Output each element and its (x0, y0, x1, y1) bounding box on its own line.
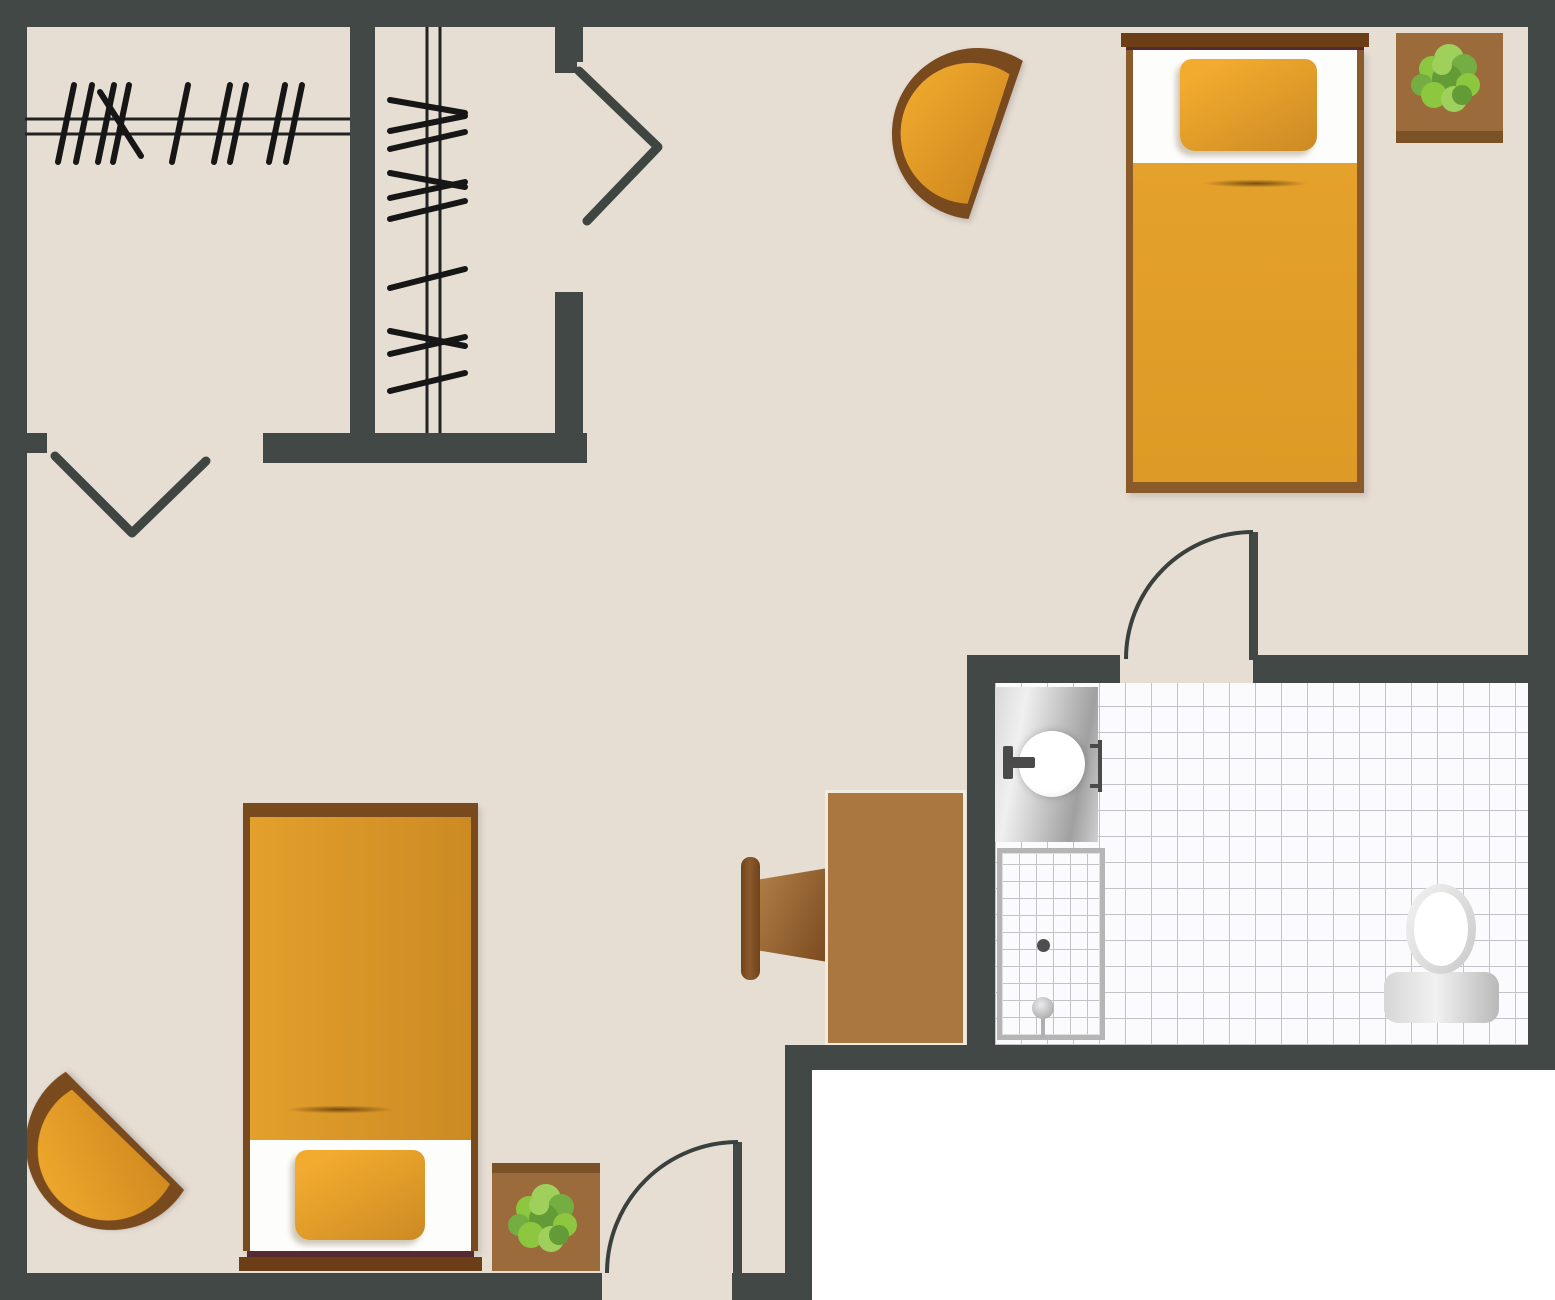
bathroom-door-arc (1126, 532, 1253, 659)
closet-door-chevron (579, 71, 658, 221)
hangers-horizontal-group (58, 85, 302, 162)
floor-plan (0, 0, 1555, 1300)
clothes-rod-horizontal (25, 119, 350, 134)
closet-door-v (55, 456, 206, 533)
plan-symbols (0, 0, 1555, 1300)
entry-door-arc (607, 1142, 738, 1273)
clothes-rod-vertical (427, 27, 440, 433)
